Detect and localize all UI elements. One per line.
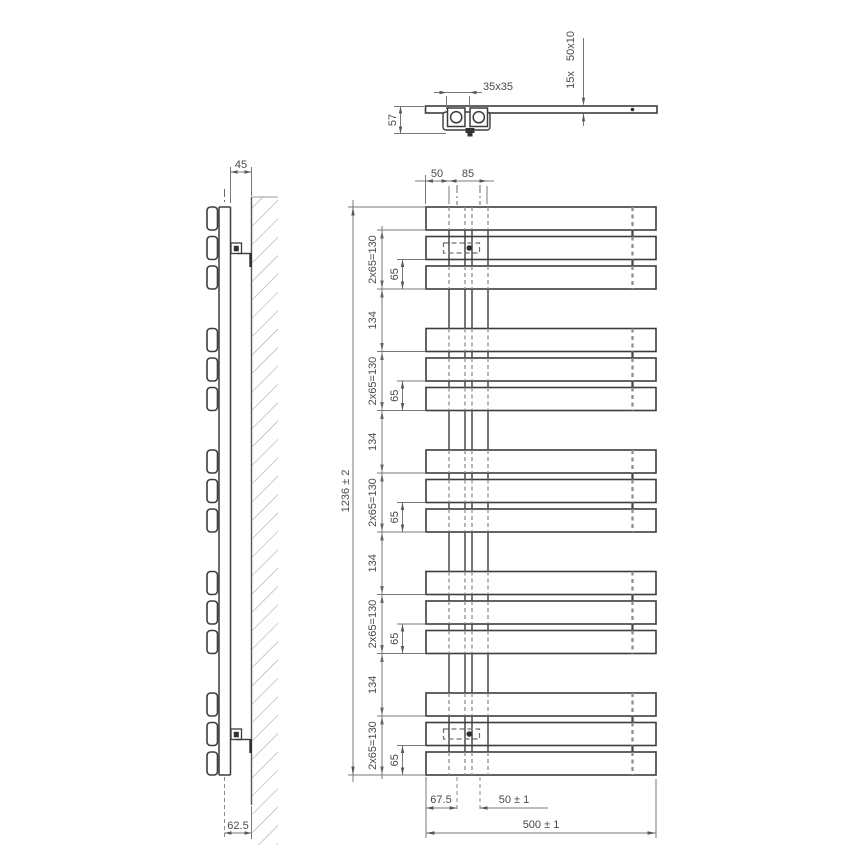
- radiator-bar: [426, 207, 656, 230]
- dimension-arrow: [648, 831, 657, 834]
- width-dim-label: 500 ± 1: [523, 819, 560, 831]
- radiator-bar: [426, 329, 656, 352]
- bottom-edge-dim-label: 67.5: [430, 794, 451, 806]
- dimension-arrow: [399, 107, 402, 114]
- tube-span-dim-label: 85: [462, 168, 474, 180]
- side-bar: [207, 480, 218, 503]
- radiator-bar: [426, 601, 656, 624]
- wall-hatch: [253, 197, 279, 845]
- side-bar: [207, 509, 218, 532]
- radiator-bar: [426, 388, 656, 411]
- dimension-arrow: [480, 806, 488, 809]
- front-view-geometry: 2x65=1301342x65=1301342x65=1301342x65=13…: [348, 175, 656, 838]
- dimension-arrow: [401, 768, 404, 776]
- radiator-bar: [426, 631, 656, 654]
- radiator-bar: [426, 450, 656, 473]
- dimension-arrow: [401, 282, 404, 290]
- wall-gap-dim-label: 45: [235, 159, 247, 171]
- dimension-arrow: [401, 403, 404, 411]
- wall-bracket-pin: [234, 246, 239, 252]
- dimension-arrow: [480, 179, 488, 182]
- technical-drawing-page: 35x35 57 15x 50x10 45 62.5 2x65=1301342x…: [0, 0, 868, 868]
- radiator-bar: [426, 480, 656, 503]
- radiator-bar: [426, 572, 656, 595]
- side-view: 45 62.5: [207, 159, 278, 845]
- bar-count-label: 15x: [565, 71, 577, 89]
- side-bar: [207, 693, 218, 716]
- bar-profile-label: 50x10: [565, 31, 577, 61]
- radiator-bar: [426, 266, 656, 289]
- group-gap-dim-label: 134: [367, 676, 379, 694]
- dimension-arrow: [401, 525, 404, 533]
- dimension-arrow: [401, 381, 404, 389]
- group-height-dim-label: 2x65=130: [367, 721, 379, 770]
- side-bar: [207, 329, 218, 352]
- wall-bracket-pin: [234, 732, 239, 738]
- group-gap-dim-label: 134: [367, 433, 379, 451]
- dimension-arrow: [351, 767, 354, 776]
- dimension-arrow: [401, 503, 404, 511]
- group-height-dim-label: 2x65=130: [367, 478, 379, 527]
- side-bar: [207, 450, 218, 473]
- dimension-arrow: [582, 113, 585, 121]
- radiator-technical-drawing: 35x35 57 15x 50x10 45 62.5 2x65=1301342x…: [0, 0, 868, 868]
- radiator-bar: [426, 693, 656, 716]
- dimension-arrow: [582, 98, 585, 106]
- group-height-dim-label: 2x65=130: [367, 357, 379, 406]
- bar-step-dim-label: 65: [389, 511, 401, 523]
- front-view: 2x65=1301342x65=1301342x65=1301342x65=13…: [340, 168, 656, 838]
- bar-step-dim-label: 65: [389, 633, 401, 645]
- side-bar: [207, 388, 218, 411]
- bar-step-dim-label: 65: [389, 390, 401, 402]
- mount-depth-dim-label: 62.5: [227, 820, 248, 832]
- radiator-bar: [426, 752, 656, 775]
- radiator-bar: [426, 237, 656, 260]
- edge-to-tube-dim-label: 50: [431, 168, 443, 180]
- side-bar: [207, 752, 218, 775]
- radiator-bar: [426, 509, 656, 532]
- bracket-fixing-dot: [467, 245, 473, 251]
- top-connector-dot: [631, 108, 635, 112]
- group-height-dim-label: 2x65=130: [367, 235, 379, 284]
- dimension-arrow: [351, 207, 354, 216]
- top-view-geometry: [394, 38, 657, 137]
- dimension-arrow: [440, 91, 447, 94]
- bracket-plate-dim-label: 35x35: [483, 81, 513, 93]
- group-gap-dim-label: 134: [367, 311, 379, 329]
- height-dim-label: 1236 ± 2: [340, 470, 352, 513]
- dimension-arrow: [426, 831, 435, 834]
- side-bar: [207, 572, 218, 595]
- dimension-arrow: [401, 624, 404, 632]
- dimension-arrow: [401, 646, 404, 654]
- dimension-arrow: [450, 806, 458, 809]
- radiator-bar: [426, 723, 656, 746]
- dimension-arrow: [470, 91, 477, 94]
- side-bar: [207, 358, 218, 381]
- group-height-dim-label: 2x65=130: [367, 600, 379, 649]
- radiator-bar: [426, 358, 656, 381]
- dimension-arrow: [401, 260, 404, 268]
- dimension-arrow: [426, 806, 434, 809]
- top-bracket-hook: [466, 128, 475, 133]
- group-gap-dim-label: 134: [367, 554, 379, 572]
- tube-pitch-dim-label: 50 ± 1: [499, 794, 530, 806]
- dimension-arrow: [401, 746, 404, 754]
- side-bar: [207, 723, 218, 746]
- bar-step-dim-label: 65: [389, 754, 401, 766]
- top-view: 35x35 57 15x 50x10: [387, 31, 657, 136]
- side-bar: [207, 266, 218, 289]
- dimension-arrow: [399, 127, 402, 134]
- bar-step-dim-label: 65: [389, 268, 401, 280]
- side-bar: [207, 631, 218, 654]
- bracket-fixing-dot: [467, 731, 473, 737]
- bracket-depth-dim-label: 57: [387, 114, 399, 126]
- side-bar: [207, 237, 218, 260]
- side-bar: [207, 601, 218, 624]
- dimension-arrow: [449, 179, 457, 182]
- side-bar: [207, 207, 218, 230]
- top-bracket-hook: [468, 133, 473, 137]
